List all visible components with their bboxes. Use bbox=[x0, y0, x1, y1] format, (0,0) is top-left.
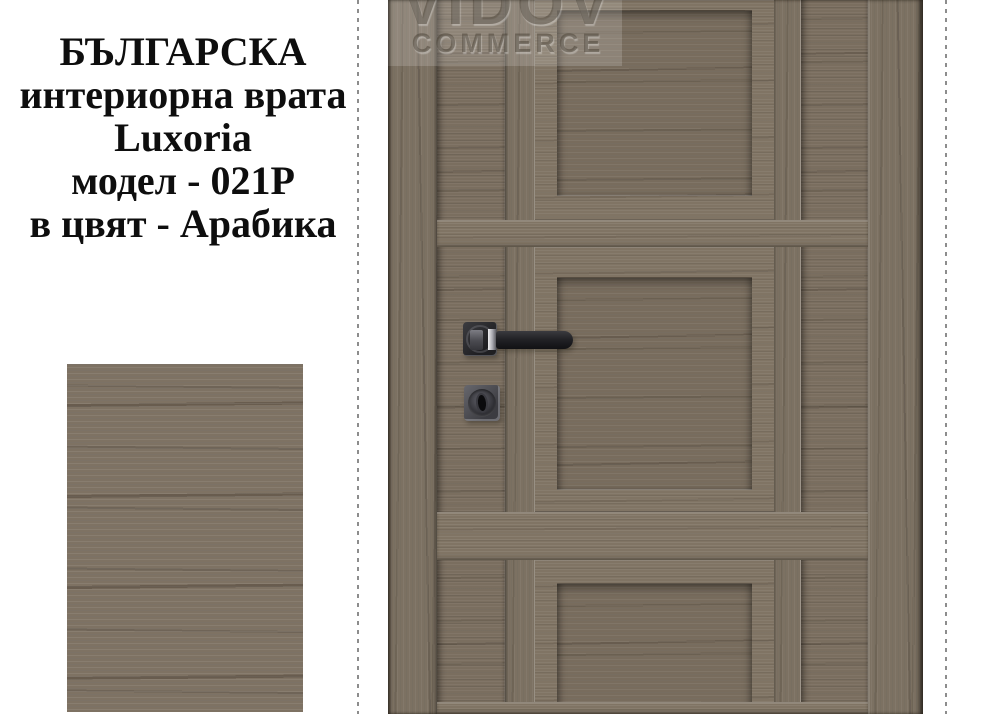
title-line-origin: БЪЛГАРСКА bbox=[8, 30, 358, 73]
door-panel-bottom-recess bbox=[557, 583, 752, 714]
door-stile-left bbox=[388, 0, 437, 714]
door-stile-inner-left bbox=[505, 0, 535, 714]
watermark-sub-text: COMMERCE bbox=[388, 30, 628, 57]
product-title-block: БЪЛГАРСКА интериорна врата Luxoria модел… bbox=[8, 30, 358, 245]
door-panel-middle bbox=[535, 247, 774, 512]
title-line-color: в цвят - Арабика bbox=[8, 202, 358, 245]
right-dashed-line bbox=[945, 0, 947, 714]
watermark-brand-text: VIDOV bbox=[388, 0, 628, 28]
door-lock-circle bbox=[468, 389, 496, 417]
color-swatch-image bbox=[67, 364, 303, 712]
door-panel-bottom bbox=[535, 560, 774, 714]
product-image-canvas: БЪЛГАРСКА интериорна врата Luxoria модел… bbox=[0, 0, 1000, 714]
door-lock-rosette bbox=[464, 385, 500, 421]
door-rail-bottom bbox=[437, 702, 868, 714]
door-groove-left bbox=[437, 0, 505, 714]
title-line-type: интериорна врата bbox=[8, 73, 358, 116]
door-rail-upper bbox=[437, 220, 868, 247]
door-groove-right bbox=[801, 0, 868, 714]
door-handle-chrome-detail bbox=[488, 329, 496, 350]
left-dashed-line bbox=[357, 0, 359, 714]
door-rail-lower bbox=[437, 512, 868, 560]
door-panel-middle-recess bbox=[557, 277, 752, 490]
door-handle-neck bbox=[470, 330, 483, 350]
title-line-model: модел - 021P bbox=[8, 159, 358, 202]
door-handle-lever bbox=[496, 331, 573, 349]
door-image: VIDOV COMMERCE bbox=[388, 0, 923, 714]
keyhole-icon bbox=[475, 392, 489, 413]
title-line-brand: Luxoria bbox=[8, 116, 358, 159]
door-stile-right bbox=[868, 0, 923, 714]
door-stile-inner-right bbox=[773, 0, 801, 714]
